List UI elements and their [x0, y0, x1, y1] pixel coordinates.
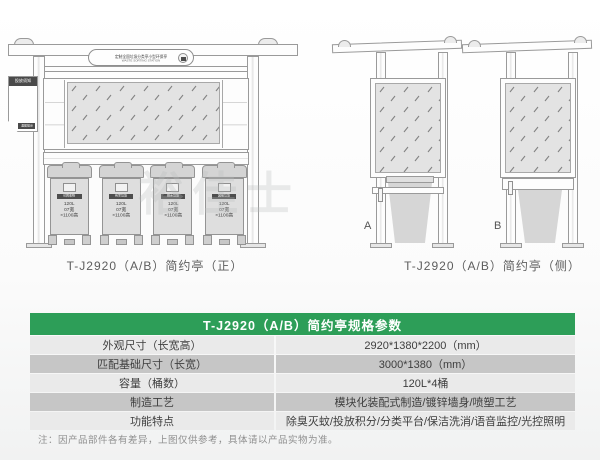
product-spec-sheet: 定制全国垃圾分类亭小型环保亭 WASTE SORTING STATION 投放须…	[0, 0, 600, 460]
bin-wheel-left	[203, 235, 212, 245]
frame-right-column	[222, 80, 247, 148]
perforated-panel-front	[67, 82, 220, 144]
side-view-caption: T-J2920（A/B）简约亭（侧）	[400, 257, 585, 274]
trash-bin-1: 可回收物 120L07宽×1100高	[46, 163, 93, 245]
bin-spec-text: 120L07宽×1100高	[61, 202, 79, 219]
bin-category-label: 有害垃圾	[115, 195, 127, 198]
side-bin-rim	[386, 176, 434, 183]
table-row: 容量（桶数） 120L*4桶	[30, 374, 575, 392]
row-value: 120L*4桶	[276, 374, 575, 392]
notice-board: 投放须知 温馨提示	[8, 76, 38, 132]
trash-bin-2: 有害垃圾 120L07宽×1100高	[98, 163, 145, 245]
trash-bin-4: 其他垃圾 120L07宽×1100高	[201, 163, 248, 245]
bin-pedal	[219, 239, 230, 245]
bin-spec-text: 120L07宽×1100高	[215, 202, 233, 219]
perforated-panel-side-a	[375, 83, 441, 173]
row-label: 功能特点	[30, 412, 274, 430]
bin-wheel-left	[48, 235, 57, 245]
top-rail	[44, 66, 248, 72]
plaque-title: 定制全国垃圾分类亭小型环保亭	[115, 53, 167, 59]
row-label: 容量（桶数）	[30, 374, 274, 392]
bin-lid	[202, 165, 247, 178]
plaque-logo-badge	[178, 53, 188, 63]
row-label: 制造工艺	[30, 393, 274, 411]
bin-pedal	[64, 239, 75, 245]
bin-label-plate	[166, 183, 179, 192]
bin-wheel-left	[100, 235, 109, 245]
notice-board-tab: 温馨提示	[21, 124, 33, 127]
bin-wheel-right	[237, 235, 246, 245]
bin-lid	[150, 165, 195, 178]
bin-body: 有害垃圾 120L07宽×1100高	[102, 178, 141, 235]
view-label-b: B	[494, 220, 501, 232]
bin-lid	[47, 165, 92, 178]
bin-category-label: 可回收物	[63, 195, 75, 198]
footnote: 注：因产品部件各有差异，上图仅供参考，具体请以产品实物为准。	[38, 432, 338, 446]
bin-wheel-right	[82, 235, 91, 245]
post-handle	[508, 181, 513, 195]
row-value: 模块化装配式制造/镀锌墙身/喷塑工艺	[276, 393, 575, 411]
table-row: 外观尺寸（长宽高） 2920*1380*2200（mm）	[30, 336, 575, 354]
view-label-a: A	[364, 220, 371, 232]
bin-label-plate	[63, 183, 76, 192]
bin-pedal	[116, 239, 127, 245]
bin-category-label: 厨余垃圾	[167, 195, 179, 198]
trash-bin-3: 厨余垃圾 120L07宽×1100高	[149, 163, 196, 245]
plaque-subtitle: WASTE SORTING STATION	[120, 59, 162, 62]
row-label: 外观尺寸（长宽高）	[30, 336, 274, 354]
perforated-panel-side-b	[505, 83, 571, 173]
front-view-caption: T-J2920（A/B）简约亭（正）	[60, 257, 250, 274]
bin-body: 厨余垃圾 120L07宽×1100高	[153, 178, 192, 235]
spec-table-title: T-J2920（A/B）简约亭规格参数	[30, 313, 575, 335]
bin-pedal	[167, 239, 178, 245]
bin-wheel-right	[134, 235, 143, 245]
bin-body: 其他垃圾 120L07宽×1100高	[205, 178, 244, 235]
bin-lid	[99, 165, 144, 178]
side-roof-dome-left	[468, 40, 481, 47]
bins-row: 可回收物 120L07宽×1100高 有害垃圾 120L07宽×1100高	[46, 163, 248, 245]
side-roof-dome-right	[574, 36, 587, 43]
row-value: 2920*1380*2200（mm）	[276, 336, 575, 354]
side-base-rear	[562, 243, 584, 248]
spec-table: T-J2920（A/B）简约亭规格参数 外观尺寸（长宽高） 2920*1380*…	[30, 313, 575, 430]
frame-left-column	[45, 80, 65, 148]
row-value: 除臭灭蚊/投放积分/分类平台/保洁洗消/语音监控/光控照明	[276, 412, 575, 430]
side-bin-body	[518, 190, 562, 243]
bin-spec-text: 120L07宽×1100高	[164, 202, 182, 219]
bin-label-plate	[218, 183, 231, 192]
post-handle	[378, 188, 383, 202]
table-row: 制造工艺 模块化装配式制造/镀锌墙身/喷塑工艺	[30, 393, 575, 411]
side-base-rear	[432, 243, 454, 248]
bin-label-plate	[115, 183, 128, 192]
bin-spec-text: 120L07宽×1100高	[112, 202, 130, 219]
side-roof-dome-right	[444, 36, 457, 43]
table-row: 功能特点 除臭灭蚊/投放积分/分类平台/保洁洗消/语音监控/光控照明	[30, 412, 575, 430]
bin-wheel-right	[185, 235, 194, 245]
notice-board-title: 投放须知	[15, 79, 31, 84]
side-base-front	[370, 243, 392, 248]
table-row: 匹配基础尺寸（长宽） 3000*1380（mm）	[30, 355, 575, 373]
station-sign-plaque: 定制全国垃圾分类亭小型环保亭 WASTE SORTING STATION	[88, 49, 194, 66]
side-roof-dome-left	[338, 40, 351, 47]
row-label: 匹配基础尺寸（长宽）	[30, 355, 274, 373]
bin-category-label: 其他垃圾	[218, 195, 230, 198]
bin-body: 可回收物 120L07宽×1100高	[50, 178, 89, 235]
row-value: 3000*1380（mm）	[276, 355, 575, 373]
side-base-front	[500, 243, 522, 248]
bin-wheel-left	[151, 235, 160, 245]
